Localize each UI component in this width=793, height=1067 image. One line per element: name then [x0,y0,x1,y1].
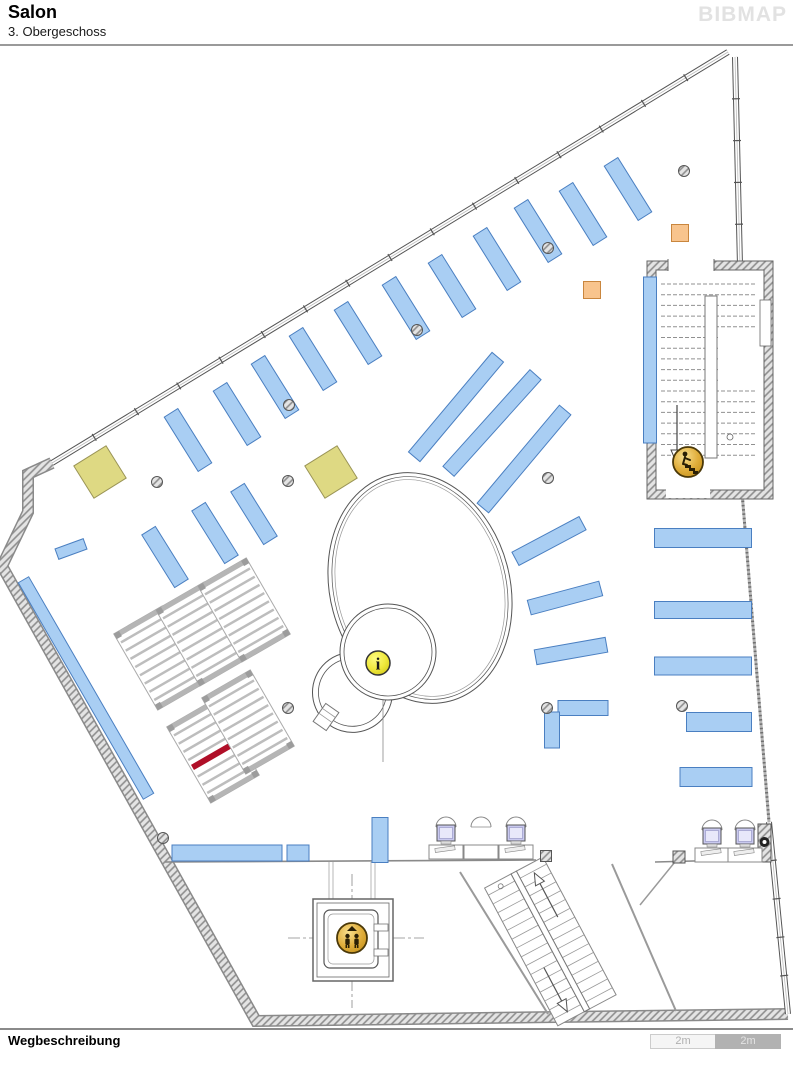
bookshelf[interactable] [655,529,752,548]
stairs-icon[interactable] [673,447,703,477]
bookshelf[interactable] [687,713,752,732]
scale-segment: 2m [650,1034,715,1049]
header: Salon 3. Obergeschoss BIBMAP [0,0,793,46]
bookshelf[interactable] [545,712,560,748]
bookshelf[interactable] [514,200,561,263]
bookshelf[interactable] [55,539,87,560]
computer-workstation[interactable] [429,817,463,859]
svg-text:i: i [376,655,381,674]
bookshelf[interactable] [287,845,309,861]
column [543,243,554,254]
column [542,703,553,714]
scale-segment: 2m [715,1034,781,1049]
bookshelf[interactable] [428,255,475,318]
bookshelf[interactable] [512,517,586,566]
floor-subtitle: 3. Obergeschoss [8,24,106,39]
column [541,851,552,862]
info-desk-hub [340,604,436,700]
bookshelf[interactable] [644,277,657,443]
footer: Wegbeschreibung 2m2m [0,1028,793,1067]
scale-bar: 2m2m [650,1034,781,1047]
directions-label: Wegbeschreibung [8,1033,120,1048]
column [283,703,294,714]
bookshelf[interactable] [408,352,503,461]
stairwell-right [647,258,773,499]
window-wall-right-upper [732,57,743,266]
bookshelf[interactable] [142,526,188,587]
bookshelf[interactable] [655,602,752,619]
accent-table-beige[interactable] [74,446,126,498]
column [543,473,554,484]
accent-table-orange[interactable] [672,225,689,242]
page-title: Salon [8,2,57,23]
bookshelf[interactable] [213,383,260,446]
bookshelf[interactable] [164,409,211,472]
bookshelf[interactable] [559,183,606,246]
accent-table-orange[interactable] [584,282,601,299]
bookshelf[interactable] [334,302,381,365]
computer-workstation[interactable] [499,817,533,859]
bookshelf[interactable] [289,328,336,391]
elevator-icon[interactable] [337,923,367,953]
accent-table-beige[interactable] [305,446,357,498]
column [152,477,163,488]
staircase-bottom [485,857,617,1026]
bibmap-logo: BIBMAP [698,3,787,27]
column [673,851,685,863]
bookshelf[interactable] [192,502,238,563]
column [677,701,688,712]
computer-workstation[interactable] [728,820,762,862]
bookshelf[interactable] [680,768,752,787]
info-icon[interactable]: i [366,651,390,675]
bookshelf[interactable] [558,701,608,716]
bookshelf[interactable] [372,818,388,863]
bookshelf[interactable] [534,637,608,664]
bookshelf[interactable] [231,483,277,544]
computer-workstation[interactable] [695,820,729,862]
window-wall-right-lower [769,822,788,1014]
column [283,476,294,487]
floorplan-canvas[interactable]: i [0,0,793,1067]
bookshelf[interactable] [655,657,752,675]
column [412,325,423,336]
stair-side-wall [612,864,676,1011]
bookshelf[interactable] [604,158,651,221]
bookshelf[interactable] [473,228,520,291]
column [284,400,295,411]
bookshelf[interactable] [18,577,153,800]
column [679,166,690,177]
column [158,833,169,844]
bookshelf[interactable] [527,581,602,615]
window-wall-top [52,52,728,463]
partition-wall [640,857,679,905]
bookshelf[interactable] [172,845,282,861]
bibmap-floorplan-app: i Salon 3. Obergeschoss BIBMAP Wegbeschr… [0,0,793,1067]
computer-workstation[interactable] [464,817,498,859]
